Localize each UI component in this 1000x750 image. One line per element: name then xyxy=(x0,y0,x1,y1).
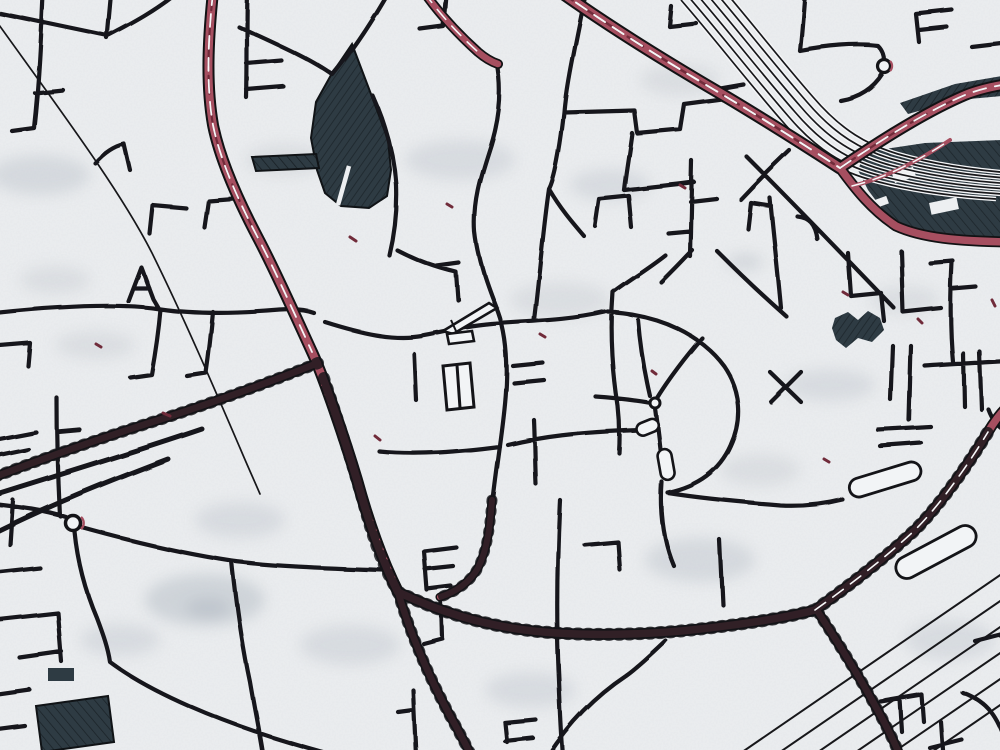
dark-rect-small xyxy=(48,668,74,681)
small-parallelogram-outline xyxy=(447,331,474,344)
twin-cell-outline xyxy=(443,363,474,410)
roundabout-lower-left xyxy=(66,516,81,531)
map-canvas xyxy=(0,0,1000,750)
map-artwork xyxy=(0,0,1000,750)
roundabout-upper-right xyxy=(878,60,891,73)
roundabout-centre-right xyxy=(650,398,660,408)
